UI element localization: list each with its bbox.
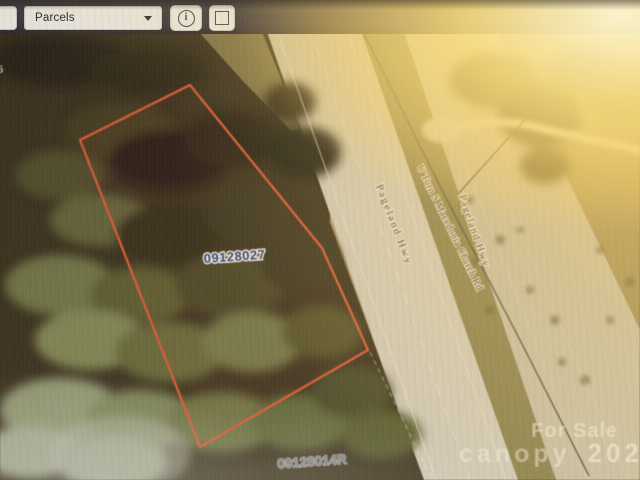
parcel-map-screen: 45 Pageland Hwy U Turn S Macedonia Churc… xyxy=(0,0,640,480)
chevron-down-icon xyxy=(144,16,152,21)
square-outline-icon xyxy=(215,11,229,25)
info-button[interactable]: i xyxy=(170,5,202,31)
layer-dropdown-label: Parcels xyxy=(25,12,144,24)
photo-grain-overlay xyxy=(0,0,640,480)
layer-dropdown[interactable]: Parcels xyxy=(24,6,162,30)
partial-toolbar-button[interactable] xyxy=(0,6,17,30)
map-toolbar: Parcels i xyxy=(0,0,640,34)
draw-rectangle-button[interactable] xyxy=(209,5,235,31)
info-circle-icon: i xyxy=(178,10,195,27)
map-canvas[interactable]: 45 Pageland Hwy U Turn S Macedonia Churc… xyxy=(0,0,640,480)
